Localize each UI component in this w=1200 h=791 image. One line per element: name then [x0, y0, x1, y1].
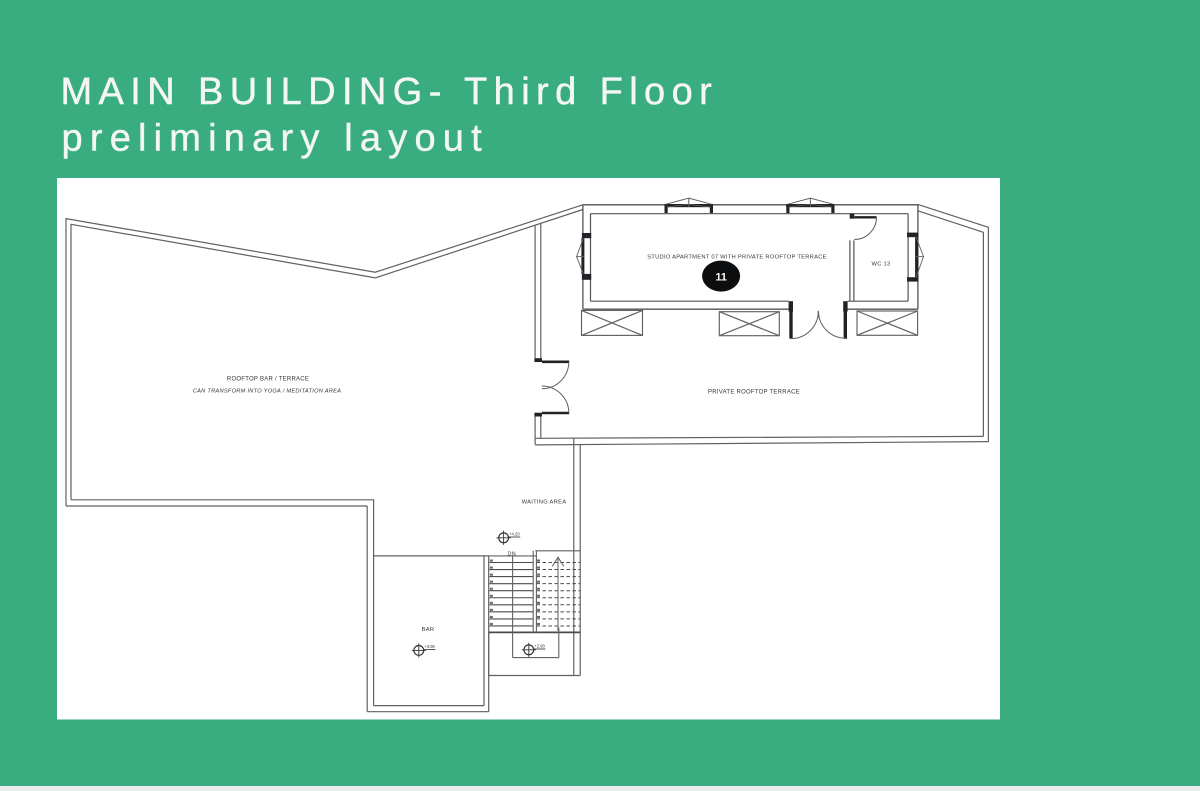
svg-text:+2.90: +2.90: [534, 644, 545, 649]
svg-text:+4.20: +4.20: [509, 532, 520, 537]
svg-text:DN: DN: [507, 551, 515, 557]
svg-text:+3.90: +3.90: [424, 644, 435, 649]
svg-text:ROOFTOP BAR / TERRACE: ROOFTOP BAR / TERRACE: [227, 377, 309, 383]
svg-text:preliminary layout: preliminary layout: [62, 118, 489, 160]
svg-text:WC 13: WC 13: [872, 262, 891, 268]
svg-text:MAIN BUILDING- Third Floor: MAIN BUILDING- Third Floor: [61, 71, 719, 113]
svg-text:11: 11: [715, 271, 726, 283]
svg-text:PRIVATE ROOFTOP TERRACE: PRIVATE ROOFTOP TERRACE: [708, 389, 800, 395]
svg-text:WAITING AREA: WAITING AREA: [522, 499, 567, 505]
svg-text:STUDIO APARTMENT 07 WITH PRIVA: STUDIO APARTMENT 07 WITH PRIVATE ROOFTOP…: [647, 254, 827, 260]
svg-text:BAR: BAR: [422, 627, 435, 633]
svg-text:CAN TRANSFORM INTO YOGA / MEDI: CAN TRANSFORM INTO YOGA / MEDITATION ARE…: [193, 389, 341, 395]
